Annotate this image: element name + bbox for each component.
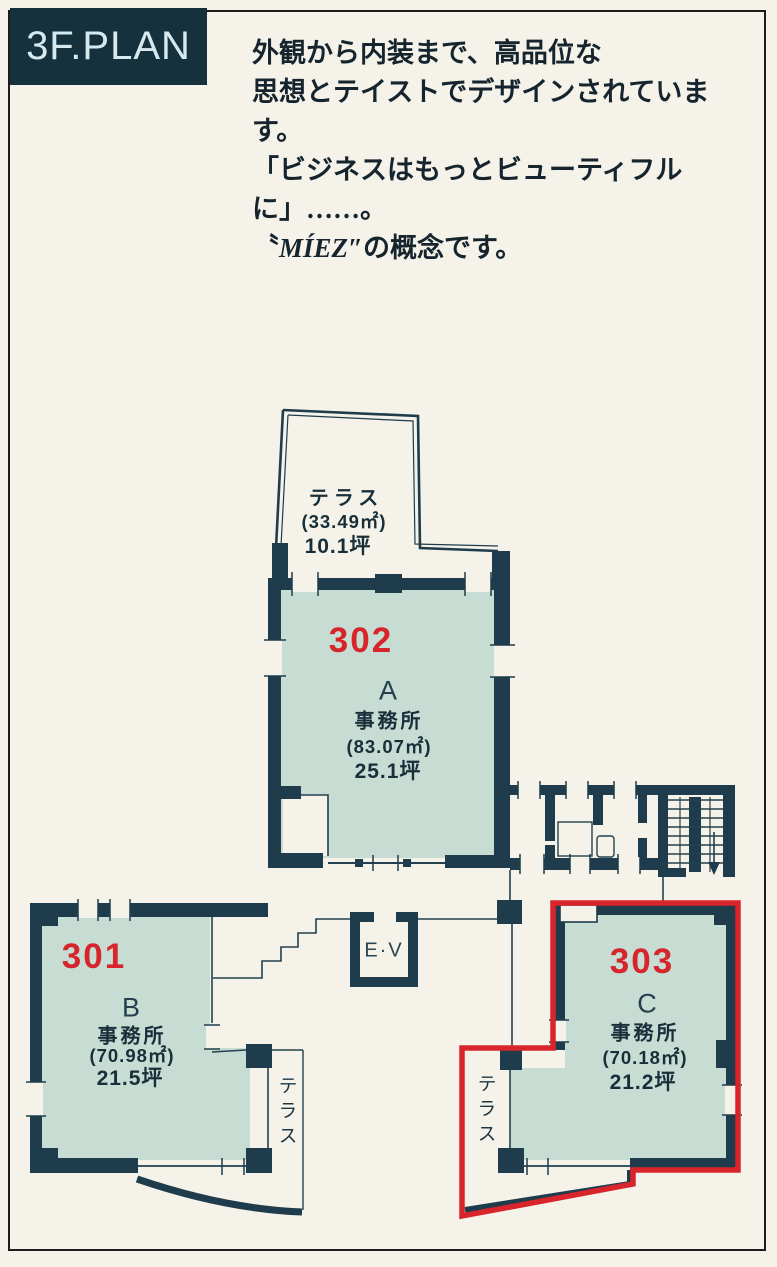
- terrace-b-label: テラス: [273, 1076, 300, 1151]
- terrace-top-label: テラス: [309, 482, 384, 511]
- unit-a-type: 事務所: [355, 705, 424, 734]
- unit-c-letter: C: [637, 989, 657, 1020]
- unit-b-area-tsubo: 21.5坪: [97, 1062, 164, 1092]
- terrace-top-area-tsubo: 10.1坪: [305, 530, 372, 560]
- balcony-curves: [137, 1170, 630, 1212]
- terrace-c-label: テラス: [472, 1074, 499, 1149]
- unit-c-number: 303: [610, 942, 674, 982]
- unit-a-area-tsubo: 25.1坪: [355, 755, 422, 785]
- staircase: [668, 797, 723, 875]
- unit-a-number: 302: [329, 621, 393, 661]
- elevator-label: E·V: [364, 940, 403, 963]
- unit-a-alcove: [283, 795, 328, 856]
- unit-a-letter: A: [379, 676, 397, 707]
- unit-c-area-tsubo: 21.2坪: [610, 1066, 677, 1096]
- unit-c-type: 事務所: [611, 1017, 680, 1046]
- wc-fixtures: [558, 822, 614, 857]
- unit-b-number: 301: [62, 937, 126, 977]
- floorplan-page: { "header": { "title": "3F.PLAN" }, "int…: [0, 0, 777, 1267]
- unit-c-vent-box: [560, 905, 597, 922]
